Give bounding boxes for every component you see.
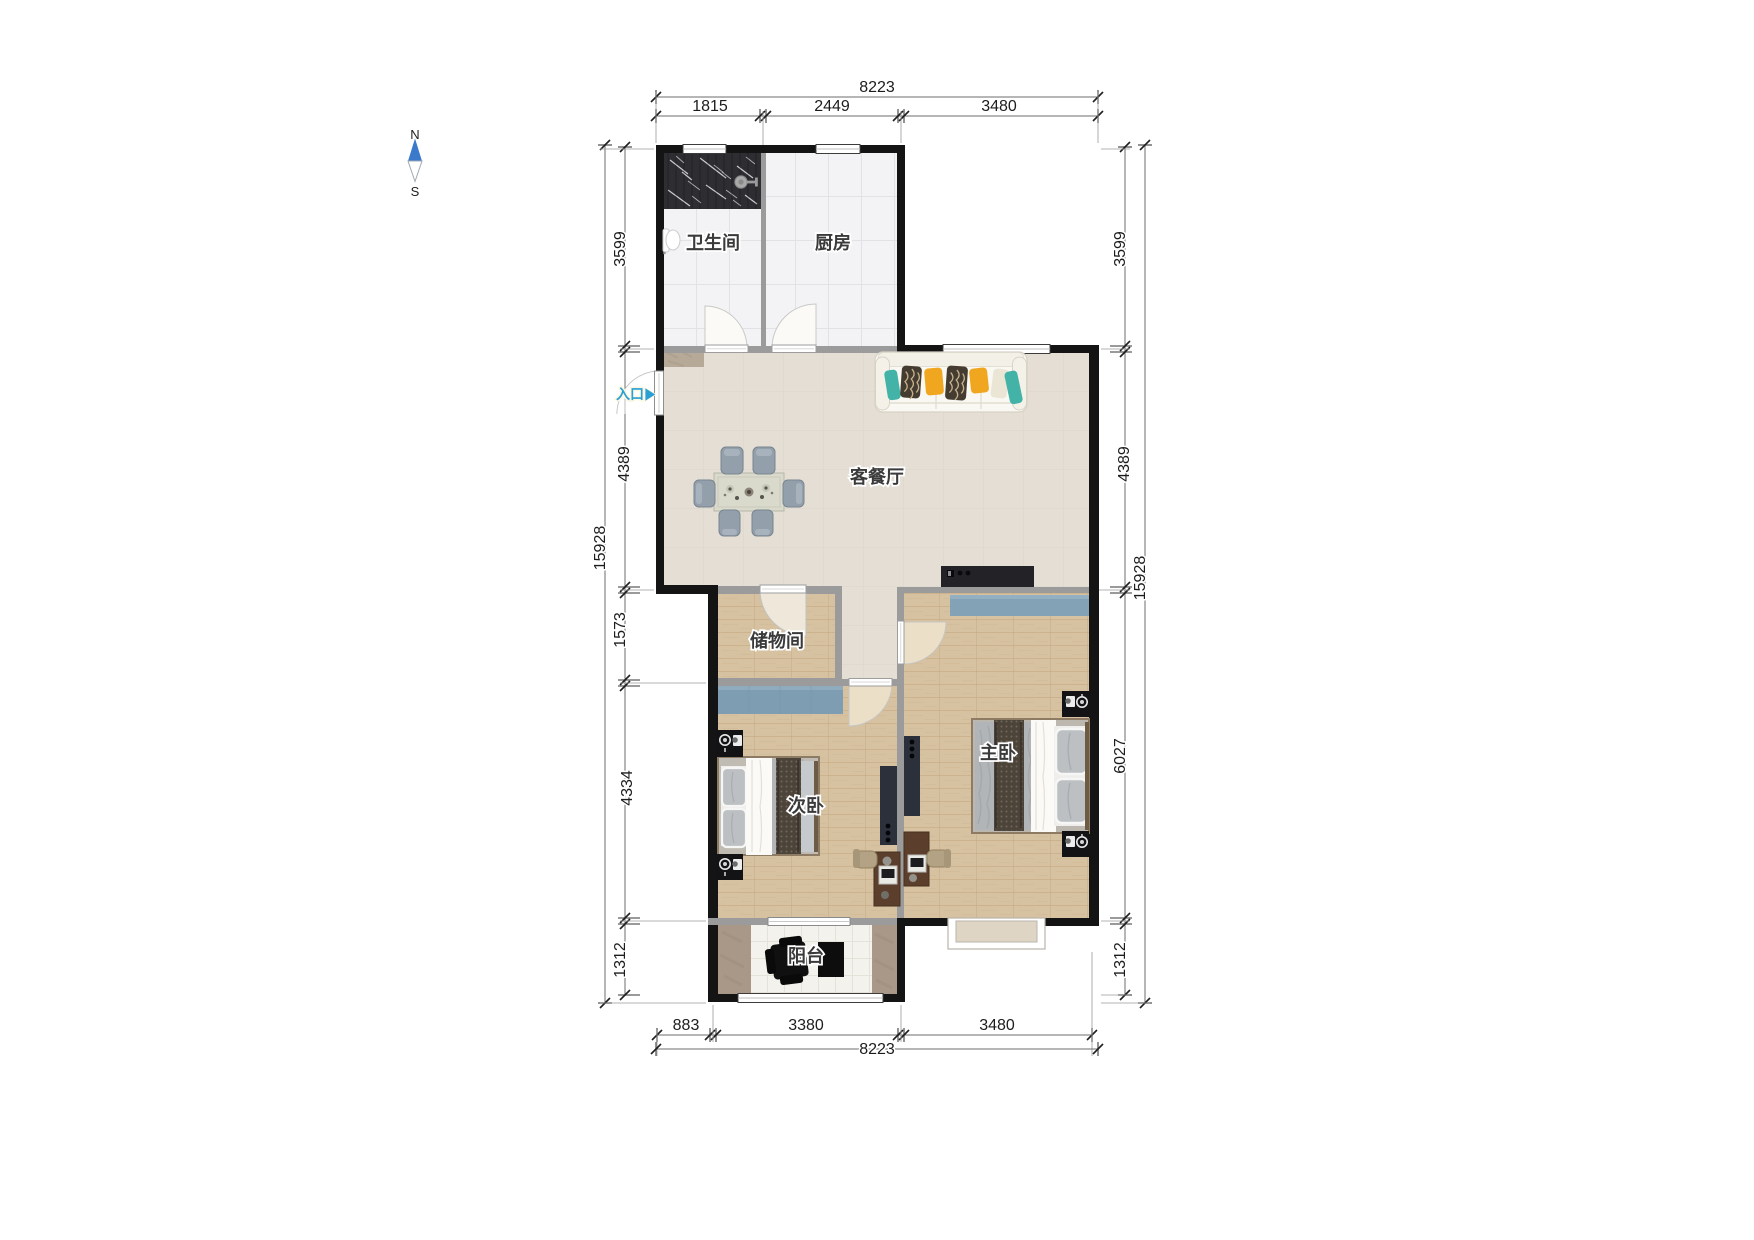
- svg-text:客餐厅: 客餐厅: [850, 466, 904, 487]
- svg-text:3599: 3599: [612, 231, 629, 267]
- svg-text:15928: 15928: [1132, 556, 1149, 601]
- svg-text:3480: 3480: [979, 1017, 1015, 1034]
- svg-text:3480: 3480: [981, 98, 1017, 115]
- svg-text:883: 883: [673, 1017, 700, 1034]
- svg-text:次卧: 次卧: [788, 795, 824, 816]
- svg-text:S: S: [411, 184, 420, 199]
- svg-text:3599: 3599: [1112, 231, 1129, 267]
- svg-text:1312: 1312: [1112, 942, 1129, 978]
- svg-text:1312: 1312: [612, 942, 629, 978]
- svg-text:4389: 4389: [1116, 446, 1133, 482]
- svg-text:卫生间: 卫生间: [686, 232, 740, 253]
- svg-text:8223: 8223: [859, 1041, 895, 1058]
- svg-text:4389: 4389: [616, 446, 633, 482]
- svg-text:3380: 3380: [788, 1017, 824, 1034]
- svg-text:1815: 1815: [692, 98, 728, 115]
- svg-text:2449: 2449: [814, 98, 850, 115]
- svg-text:15928: 15928: [592, 526, 609, 571]
- svg-text:阳台: 阳台: [788, 945, 824, 966]
- svg-text:储物间: 储物间: [749, 630, 804, 651]
- svg-text:8223: 8223: [859, 79, 895, 96]
- svg-text:6027: 6027: [1112, 738, 1129, 774]
- svg-text:1573: 1573: [612, 612, 629, 648]
- svg-text:厨房: 厨房: [815, 232, 851, 253]
- svg-text:4334: 4334: [619, 770, 636, 806]
- svg-text:入口: 入口: [616, 386, 644, 402]
- svg-text:主卧: 主卧: [980, 742, 1016, 763]
